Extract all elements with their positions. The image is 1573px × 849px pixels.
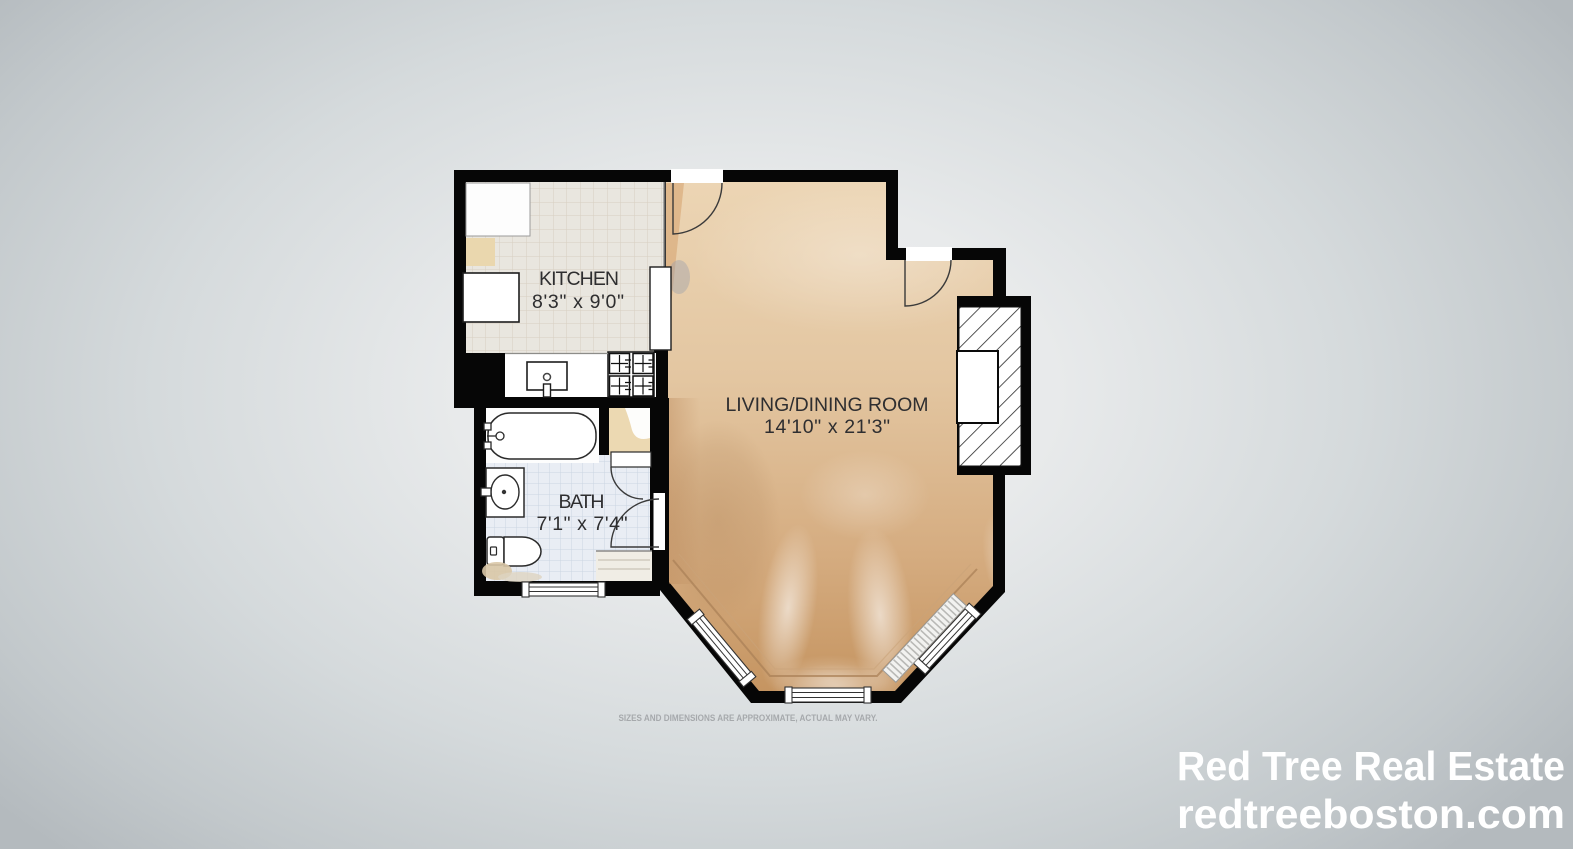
svg-text:LIVING/DINING ROOM: LIVING/DINING ROOM <box>726 394 929 416</box>
svg-text:Red Tree Real Estate: Red Tree Real Estate <box>1177 743 1565 789</box>
svg-text:redtreeboston.com: redtreeboston.com <box>1177 791 1565 837</box>
svg-text:SIZES AND DIMENSIONS ARE APPRO: SIZES AND DIMENSIONS ARE APPROXIMATE, AC… <box>619 713 878 724</box>
svg-text:14'10" x 21'3": 14'10" x 21'3" <box>764 416 890 438</box>
svg-text:8'3" x 9'0": 8'3" x 9'0" <box>532 291 624 313</box>
svg-text:7'1" x 7'4": 7'1" x 7'4" <box>537 513 628 535</box>
svg-text:KITCHEN: KITCHEN <box>539 268 619 290</box>
svg-text:BATH: BATH <box>559 491 605 513</box>
